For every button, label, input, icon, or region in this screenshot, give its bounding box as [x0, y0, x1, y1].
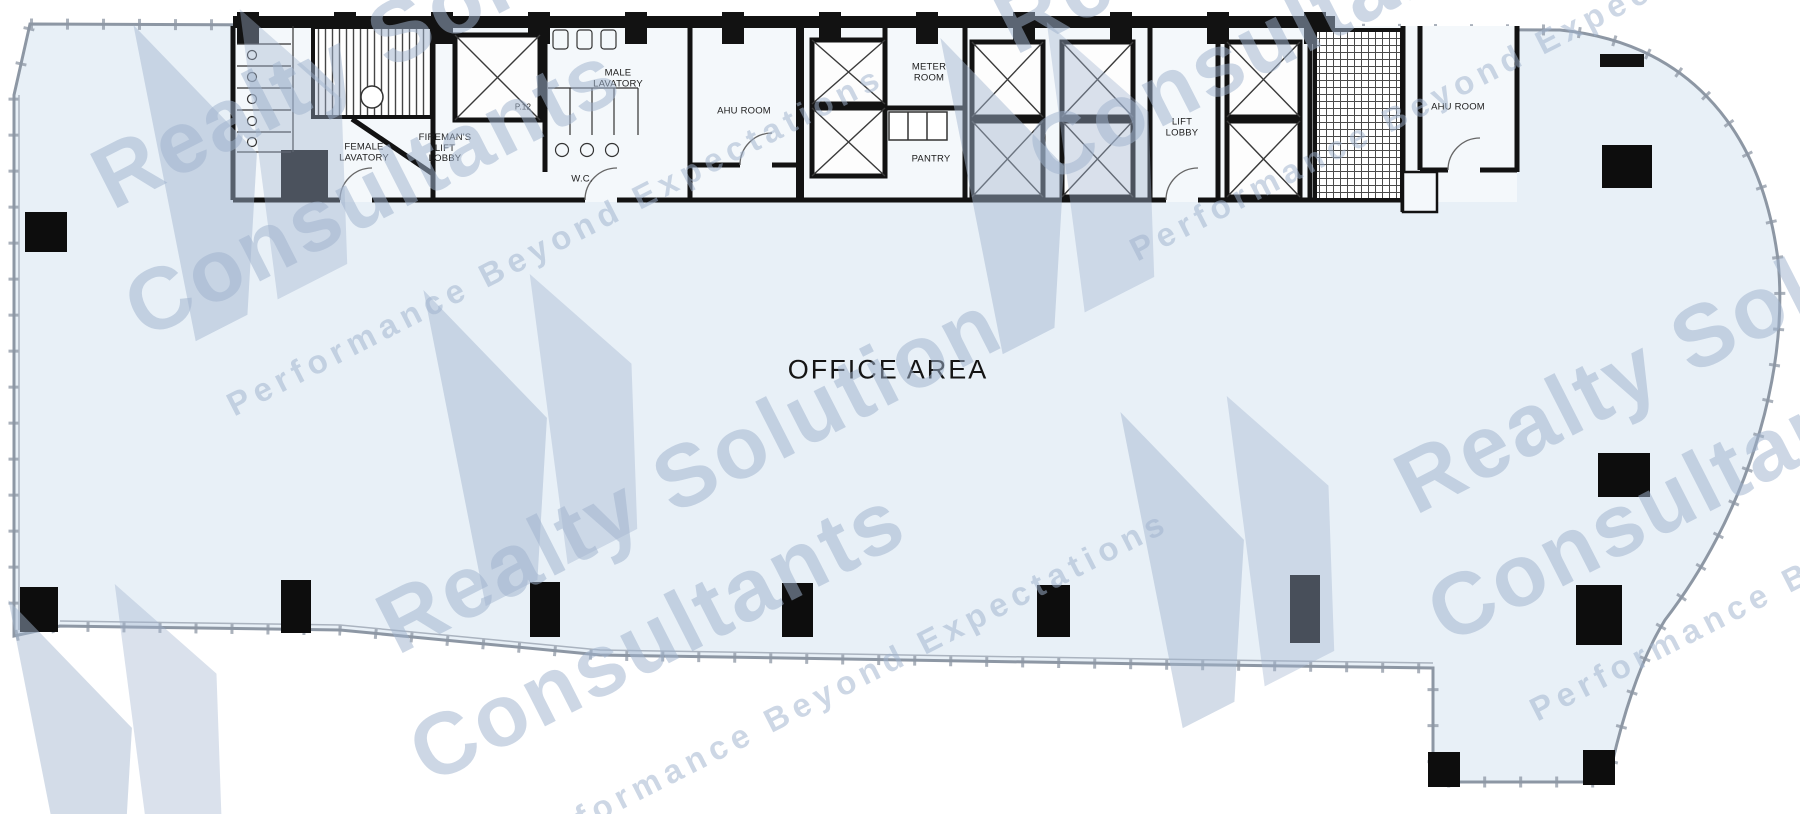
floor-plan-drawing	[0, 0, 1800, 814]
room-label-meter-room: METER ROOM	[912, 62, 946, 83]
room-label-pantry: PANTRY	[912, 155, 951, 166]
room-label-female-lavatory: FEMALE LAVATORY	[339, 142, 389, 163]
room-label-ahu-room-right: AHU ROOM	[1431, 103, 1485, 114]
room-label-lift-lobby: LIFT LOBBY	[1166, 117, 1199, 138]
room-label-firemans-lift-lobby: FIREMAN'S LIFT LOBBY	[419, 133, 472, 165]
pantry-counter	[889, 112, 947, 140]
floor-plan-page: FEMALE LAVATORY FIREMAN'S LIFT LOBBY P.1…	[0, 0, 1800, 814]
wall-chunk	[281, 150, 328, 202]
office-area-label: OFFICE AREA	[788, 355, 989, 386]
stair-newel	[361, 86, 383, 108]
stair-core-right	[1315, 30, 1402, 200]
lift-number-label: P.12	[515, 104, 531, 113]
store-room	[1403, 172, 1437, 212]
room-label-wc: W.C.	[571, 175, 592, 186]
room-label-ahu-room-left: AHU ROOM	[717, 107, 771, 118]
room-label-male-lavatory: MALE LAVATORY	[593, 68, 643, 89]
